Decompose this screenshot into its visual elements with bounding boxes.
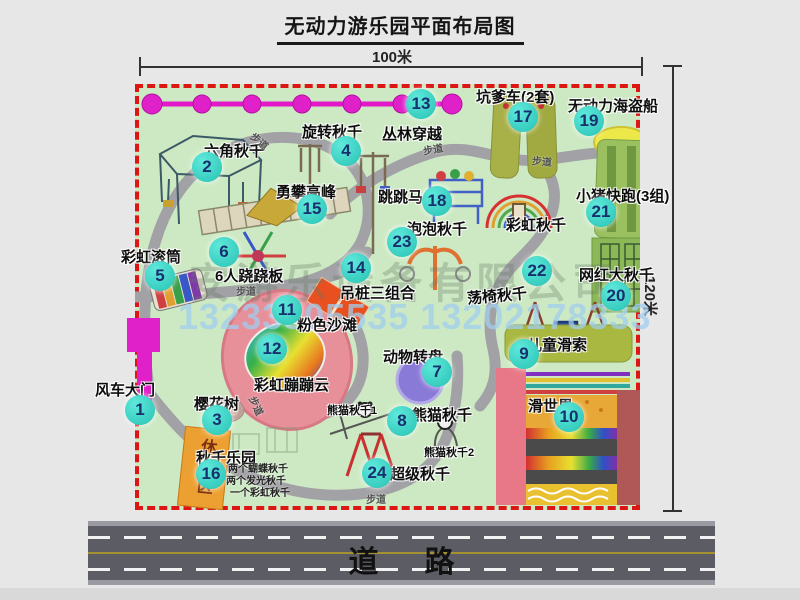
- attraction-15-badge: 15: [297, 194, 327, 224]
- attraction-11-badge: 11: [272, 295, 302, 325]
- panda-swing-2-label: 熊猫秋千2: [424, 444, 474, 460]
- page-title-wrap: 无动力游乐园平面布局图: [0, 10, 800, 45]
- attraction-13-badge: 13: [406, 89, 436, 119]
- road: 道路: [88, 521, 715, 585]
- footpath-label-3: 步道: [531, 152, 552, 169]
- attraction-24-badge: 24: [362, 458, 392, 488]
- attraction-11-label: 粉色沙滩: [297, 314, 357, 335]
- attraction-22-badge: 22: [522, 256, 552, 286]
- attraction-14-badge: 14: [341, 253, 371, 283]
- road-label: 道路: [88, 537, 715, 581]
- slide-world: [496, 368, 640, 505]
- width-dimension-label: 100米: [372, 46, 412, 67]
- attraction-21-badge: 21: [586, 197, 616, 227]
- width-dim-tick-right: [641, 57, 643, 76]
- attraction-6-badge: 6: [209, 237, 239, 267]
- attraction-1-badge: 1: [125, 395, 155, 425]
- attraction-19-badge: 19: [574, 106, 604, 136]
- attraction-2-badge: 2: [192, 152, 222, 182]
- width-dimension-line: [140, 66, 642, 68]
- attraction-18-badge: 18: [422, 186, 452, 216]
- screenshot-root: { "title": "无动力游乐园平面布局图", "dimensions": …: [0, 0, 800, 600]
- attraction-20-badge: 20: [601, 281, 631, 311]
- swing-park-note-1: 两个蝴蝶秋千: [228, 464, 288, 476]
- windmill-gate-icon: [127, 318, 160, 352]
- attraction-16-badge: 16: [196, 459, 226, 489]
- footpath-label-4: 步道: [236, 283, 256, 298]
- attraction-4-badge: 4: [331, 136, 361, 166]
- height-dim-tick-bottom: [663, 510, 682, 512]
- attraction-14-label: 吊桩三组合: [340, 282, 415, 303]
- attraction-8-label: 熊猫秋千: [412, 404, 472, 425]
- attraction-9-badge: 9: [509, 339, 539, 369]
- attraction-23-badge: 23: [387, 227, 417, 257]
- swing-park-note-2: 两个发光秋千: [226, 476, 286, 488]
- attraction-12-label: 彩虹蹦蹦云: [254, 374, 329, 395]
- height-dimension-line: [672, 66, 674, 512]
- attraction-10-badge: 10: [554, 402, 584, 432]
- attraction-17-badge: 17: [508, 102, 538, 132]
- attraction-3-badge: 3: [202, 405, 232, 435]
- footpath-label-6: 步道: [366, 491, 386, 506]
- width-dim-tick-left: [139, 57, 141, 76]
- attraction-5-badge: 5: [145, 261, 175, 291]
- attraction-18-label: 跳跳马: [378, 186, 423, 207]
- attraction-12-badge: 12: [257, 334, 287, 364]
- attraction-24-label: 超级秋千: [390, 463, 450, 484]
- height-dim-tick-top: [663, 65, 682, 67]
- panda-swing-1-label: 熊猫秋千1: [327, 402, 377, 418]
- attraction-8-badge: 8: [387, 406, 417, 436]
- attraction-7-badge: 7: [422, 357, 452, 387]
- rainbow-swing-label: 彩虹秋千: [506, 214, 566, 235]
- bottom-margin: [0, 588, 800, 600]
- page-title: 无动力游乐园平面布局图: [277, 10, 524, 45]
- swing-park-note-3: 一个彩虹秋千: [230, 488, 290, 500]
